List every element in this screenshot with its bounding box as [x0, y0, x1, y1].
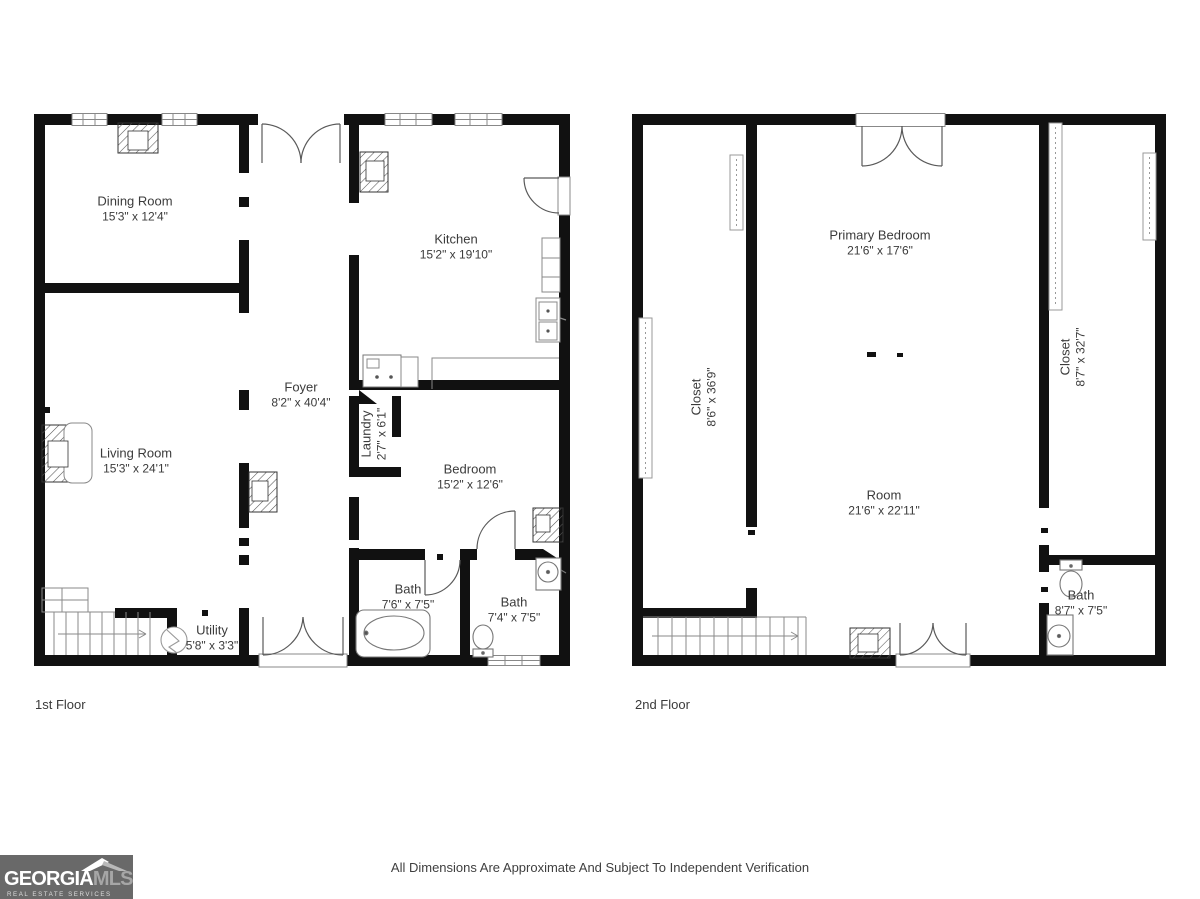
window	[72, 114, 107, 126]
stairs-icon	[42, 588, 150, 655]
room-label-bath-1: Bath 7'6" x 7'5"	[382, 581, 434, 614]
chimney-hatch	[533, 508, 563, 542]
chimney-hatch	[249, 472, 277, 512]
chimney-hatch	[118, 123, 158, 153]
toilet-icon	[473, 625, 493, 657]
logo-brand-text: GEORGIAMLS	[4, 868, 133, 891]
room-label-closet-left: Closet 8'6" x 36'9"	[688, 367, 721, 426]
window	[488, 656, 540, 666]
fireplace	[42, 423, 92, 483]
bathtub-icon	[356, 610, 430, 657]
floor-plan-drawing	[0, 0, 1200, 899]
room-label-room: Room 21'6" x 22'11"	[848, 487, 920, 520]
room-label-bath-2: Bath 7'4" x 7'5"	[488, 594, 540, 627]
room-label-living-room: Living Room 15'3" x 24'1"	[100, 445, 172, 478]
floor-plan-page: Dining Room 15'3" x 12'4" Kitchen 15'2" …	[0, 0, 1200, 899]
room-label-kitchen: Kitchen 15'2" x 19'10"	[420, 231, 493, 264]
room-label-laundry: Laundry 2'7" x 6'1"	[358, 408, 391, 460]
chimney-hatch	[850, 628, 890, 658]
room-label-foyer: Foyer 8'2" x 40'4"	[271, 379, 330, 412]
double-door	[856, 114, 945, 167]
double-door	[259, 617, 347, 667]
room-label-bath-upper: Bath 8'7" x 7'5"	[1055, 587, 1107, 620]
disclaimer-text: All Dimensions Are Approximate And Subje…	[0, 860, 1200, 875]
double-door	[896, 623, 970, 667]
floor-tag-2nd: 2nd Floor	[635, 697, 690, 712]
room-label-closet-right: Closet 8'7" x 32'7"	[1057, 327, 1090, 386]
room-label-bedroom: Bedroom 15'2" x 12'6"	[437, 461, 503, 494]
window	[162, 114, 197, 126]
room-label-primary-bedroom: Primary Bedroom 21'6" x 17'6"	[829, 227, 930, 260]
logo-tagline: REAL ESTATE SERVICES	[7, 891, 112, 898]
sink-icon	[1047, 615, 1073, 655]
floor-tag-1st: 1st Floor	[35, 697, 86, 712]
room-label-utility: Utility 5'8" x 3'3"	[186, 622, 238, 655]
double-door	[262, 124, 340, 163]
room-label-dining-room: Dining Room 15'3" x 12'4"	[97, 193, 172, 226]
water-heater-icon	[161, 627, 187, 653]
stairs-icon	[643, 617, 806, 655]
door	[477, 511, 515, 549]
window	[455, 114, 502, 126]
door	[524, 177, 570, 215]
doors-second-floor	[856, 114, 970, 668]
chimney-hatch	[360, 152, 388, 192]
georgia-mls-logo: GEORGIAMLS REAL ESTATE SERVICES	[0, 855, 133, 899]
window	[385, 114, 432, 126]
sink-icon	[536, 558, 566, 590]
